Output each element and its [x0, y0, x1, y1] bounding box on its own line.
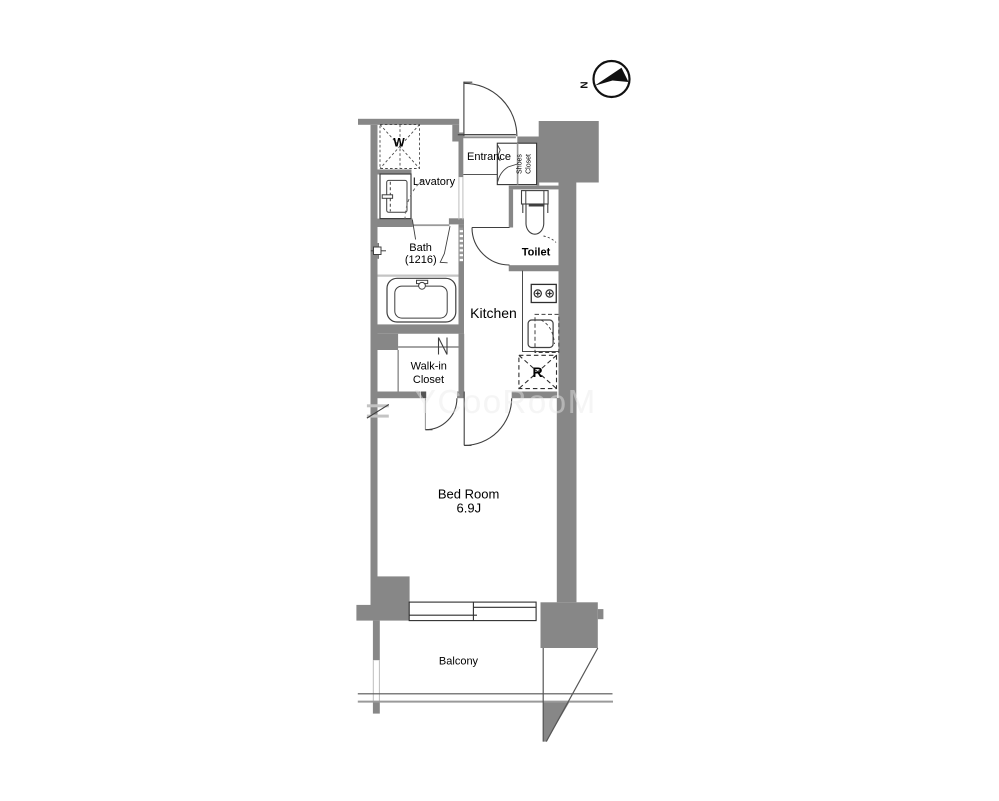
svg-text:Kitchen: Kitchen	[470, 305, 517, 321]
svg-text:Balcony: Balcony	[439, 656, 479, 668]
svg-text:Entrance: Entrance	[467, 151, 511, 163]
svg-text:Bed Room: Bed Room	[438, 487, 499, 502]
svg-text:N: N	[580, 81, 591, 88]
svg-text:R: R	[532, 364, 542, 380]
svg-text:YCooRooM: YCooRooM	[414, 383, 597, 420]
svg-text:6.9J: 6.9J	[457, 501, 482, 516]
svg-text:Bath: Bath	[409, 242, 432, 254]
svg-text:Shoes: Shoes	[517, 154, 524, 174]
svg-text:W: W	[393, 136, 405, 150]
svg-text:Closet: Closet	[526, 154, 533, 174]
svg-text:Lavatory: Lavatory	[413, 176, 456, 188]
svg-text:Toilet: Toilet	[522, 246, 551, 258]
svg-text:Walk-in: Walk-in	[411, 360, 447, 372]
svg-text:(1216): (1216)	[405, 254, 437, 266]
